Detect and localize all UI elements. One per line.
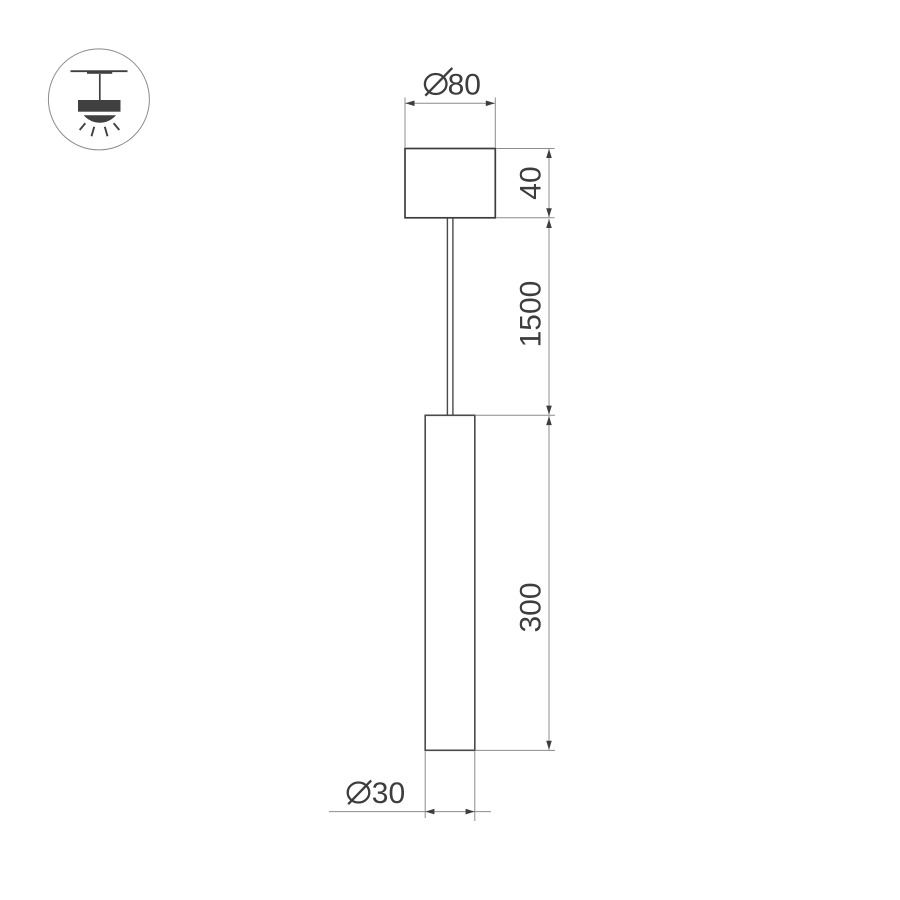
svg-text:30: 30 xyxy=(372,777,405,810)
svg-text:40: 40 xyxy=(515,166,548,199)
svg-text:300: 300 xyxy=(515,582,548,632)
svg-text:1500: 1500 xyxy=(515,281,548,348)
svg-text:80: 80 xyxy=(448,69,481,102)
